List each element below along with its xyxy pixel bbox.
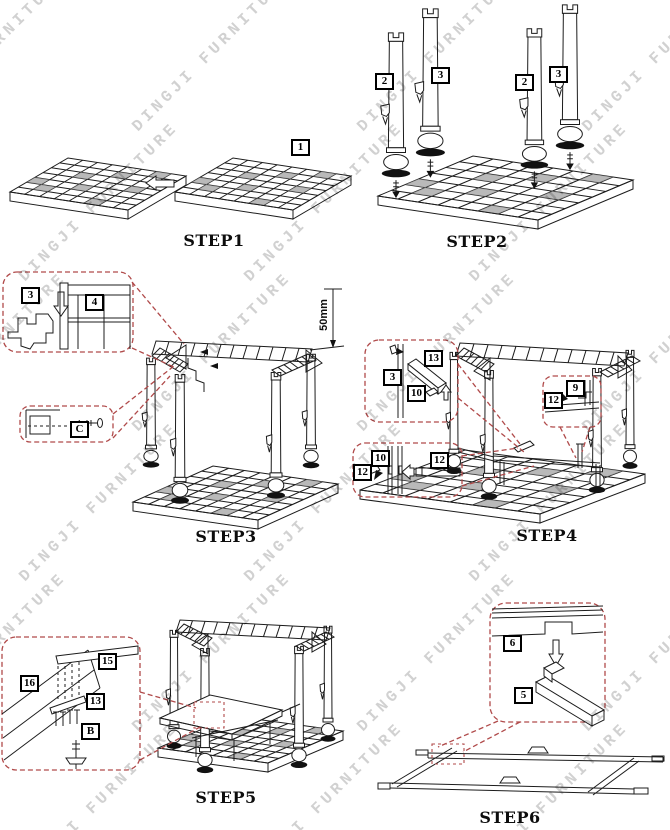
part-label-beam: 13 xyxy=(424,350,443,367)
part-label-leg: 3 xyxy=(431,67,450,84)
part-label-screw: B xyxy=(81,723,100,740)
step6-title: STEP6 xyxy=(478,808,542,827)
part-label-screw: C xyxy=(70,421,89,438)
step4-title: STEP4 xyxy=(515,526,579,545)
deck-panel xyxy=(133,466,338,529)
corner-bracket-part xyxy=(8,314,53,349)
post xyxy=(480,371,497,500)
part-label-tabletop: 16 xyxy=(20,675,39,692)
step3-drawing xyxy=(3,272,344,529)
post xyxy=(320,626,336,742)
part-label-rail: 6 xyxy=(503,635,522,652)
post xyxy=(142,358,159,467)
notched-rail-part xyxy=(492,606,603,636)
part-label-bracket: 3 xyxy=(383,369,402,386)
leg-front-right xyxy=(520,29,549,189)
lattice-crown xyxy=(176,620,334,654)
edge-rail-part xyxy=(56,646,138,664)
part-label-bracket: 3 xyxy=(21,287,40,304)
step5-title: STEP5 xyxy=(194,788,258,807)
post xyxy=(166,630,182,749)
lattice-panel-part xyxy=(60,283,130,349)
part-label-leg: 2 xyxy=(515,74,534,91)
post xyxy=(302,354,319,468)
leg-front-left xyxy=(381,33,410,198)
deck-panel-right xyxy=(175,158,351,219)
assembly-instruction-sheet: DINGJI FURNITUREDINGJI FURNITUREDINGJI F… xyxy=(0,0,670,830)
roof-frame xyxy=(378,744,664,795)
part-label-stretcher: 12 xyxy=(353,464,372,481)
roof-beam-part xyxy=(536,662,604,726)
step2-title: STEP2 xyxy=(445,232,509,251)
leg-back-left xyxy=(415,9,445,178)
part-label-stretcher: 12 xyxy=(430,452,449,469)
deck-panel-left xyxy=(10,158,186,219)
part-label-beam: 5 xyxy=(514,687,533,704)
part-label-panel: 1 xyxy=(291,139,310,156)
down-arrow-icon xyxy=(54,292,68,316)
step5-drawing xyxy=(2,620,343,773)
leg-back-right xyxy=(555,5,584,170)
part-label-dowel: 10 xyxy=(407,385,426,402)
part-label-dowel: 10 xyxy=(371,450,390,467)
part-label-leg: 3 xyxy=(549,66,568,83)
dimension-label: 50mm xyxy=(318,299,330,331)
step2-drawing xyxy=(378,5,633,229)
deck-panel xyxy=(378,156,633,229)
part-label-rail: 15 xyxy=(98,653,117,670)
lattice-crown xyxy=(456,343,640,380)
callout-step6 xyxy=(438,603,605,752)
step4-drawing xyxy=(353,340,645,523)
part-label-leg: 2 xyxy=(375,73,394,90)
step3-title: STEP3 xyxy=(194,527,258,546)
part-label-support: 9 xyxy=(566,380,585,397)
callout-step4-top xyxy=(365,340,524,452)
part-label-lattice: 4 xyxy=(85,294,104,311)
step1-title: STEP1 xyxy=(182,231,246,250)
post xyxy=(266,372,285,498)
part-label-stretcher: 12 xyxy=(544,392,563,409)
part-label-cleat: 13 xyxy=(86,693,105,710)
step1-drawing xyxy=(10,158,351,219)
